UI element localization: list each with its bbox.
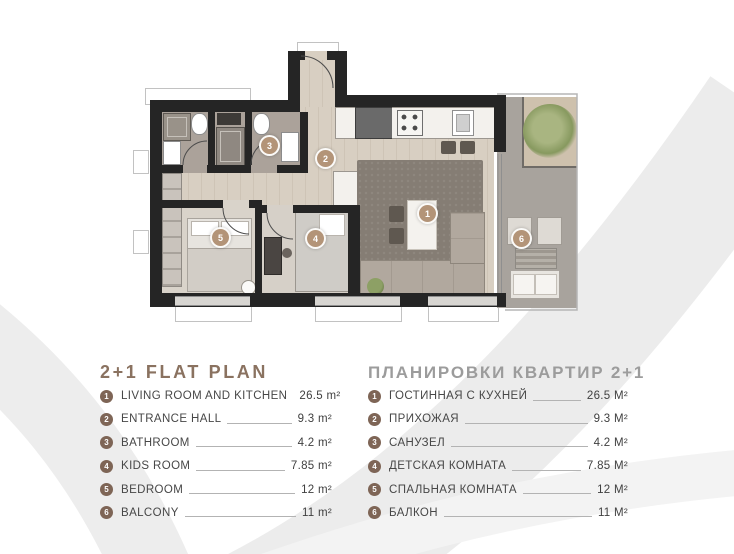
- leader-line: [185, 516, 296, 517]
- balcony-table: [515, 248, 557, 269]
- window-sill-living: [428, 306, 499, 322]
- list-item: 4 KIDS ROOM 7.85 m²: [100, 459, 332, 473]
- balcony-chair: [537, 217, 562, 245]
- leader-line: [227, 423, 291, 424]
- item-number-badge: 5: [100, 483, 113, 496]
- leader-line: [465, 423, 588, 424]
- dining-chair: [460, 141, 475, 154]
- room-label: ДЕТСКАЯ КОМНАТА: [389, 460, 506, 472]
- loveseat-icon: [510, 270, 560, 299]
- leader-line: [512, 470, 581, 471]
- room-area: 26.5 М²: [587, 390, 628, 402]
- wall: [208, 112, 215, 165]
- room-label: БАЛКОН: [389, 507, 438, 519]
- flat-plan-title-en: 2+1 FLAT PLAN: [100, 362, 268, 383]
- item-number-badge: 2: [368, 413, 381, 426]
- page: 1 2 3 4 5 6 2+1 FLAT PLAN 1 LIVING ROOM …: [0, 0, 734, 554]
- wardrobe-icon: [162, 173, 182, 287]
- desk-icon: [264, 237, 282, 275]
- item-number-badge: 3: [100, 436, 113, 449]
- room-label: KIDS ROOM: [121, 460, 190, 472]
- dining-chair: [441, 141, 456, 154]
- item-number-badge: 6: [100, 506, 113, 519]
- room-area: 7.85 М²: [587, 460, 628, 472]
- flat-plan-list-ru: 1 ГОСТИННАЯ С КУХНЕЙ 26.5 М² 2 ПРИХОЖАЯ …: [368, 389, 628, 529]
- item-number-badge: 4: [368, 460, 381, 473]
- plan-marker-1: 1: [417, 203, 438, 224]
- room-label: САНУЗЕЛ: [389, 437, 445, 449]
- leader-line: [196, 470, 284, 471]
- plan-marker-5: 5: [210, 227, 231, 248]
- leader-line: [533, 400, 581, 401]
- window-icon: [175, 296, 250, 306]
- room-area: 11 m²: [302, 507, 332, 519]
- door-opening: [267, 205, 293, 213]
- left-sill-2: [133, 230, 149, 254]
- list-item: 6 БАЛКОН 11 М²: [368, 506, 628, 520]
- shower-cabin-icon: [216, 127, 245, 166]
- wall: [348, 205, 360, 293]
- door-opening: [251, 165, 277, 173]
- wall: [300, 112, 308, 173]
- toilet-icon: [253, 113, 270, 135]
- list-item: 2 ENTRANCE HALL 9.3 m²: [100, 412, 332, 426]
- wall: [494, 100, 506, 152]
- room-label: LIVING ROOM AND KITCHEN: [121, 390, 287, 402]
- room-area: 7.85 m²: [291, 460, 332, 472]
- wall: [255, 200, 262, 293]
- room-label: ENTRANCE HALL: [121, 413, 221, 425]
- kitchen-counter-dark: [355, 107, 394, 139]
- room-area: 12 М²: [597, 484, 628, 496]
- window-sill-bedroom: [175, 306, 252, 322]
- list-item: 2 ПРИХОЖАЯ 9.3 М²: [368, 412, 628, 426]
- room-label: BATHROOM: [121, 437, 190, 449]
- room-area: 4.2 m²: [298, 437, 332, 449]
- bathroom-sink-icon: [163, 141, 181, 165]
- list-item: 1 ГОСТИННАЯ С КУХНЕЙ 26.5 М²: [368, 389, 628, 403]
- door-opening: [305, 51, 327, 60]
- wall: [245, 112, 252, 165]
- item-number-badge: 6: [368, 506, 381, 519]
- plan-marker-3: 3: [259, 135, 280, 156]
- item-number-badge: 3: [368, 436, 381, 449]
- room-area: 9.3 m²: [298, 413, 332, 425]
- list-item: 5 BEDROOM 12 m²: [100, 483, 332, 497]
- single-bed-icon: [295, 210, 349, 292]
- room-label: ГОСТИННАЯ С КУХНЕЙ: [389, 390, 527, 402]
- desk-chair: [282, 248, 292, 258]
- flat-plan-list-en: 1 LIVING ROOM AND KITCHEN 26.5 m² 2 ENTR…: [100, 389, 332, 529]
- room-label: BEDROOM: [121, 484, 183, 496]
- room-area: 4.2 М²: [594, 437, 628, 449]
- item-number-badge: 4: [100, 460, 113, 473]
- room-label: BALCONY: [121, 507, 179, 519]
- leader-line: [196, 446, 292, 447]
- item-number-badge: 1: [368, 390, 381, 403]
- room-label: СПАЛЬНАЯ КОМНАТА: [389, 484, 517, 496]
- leader-line: [451, 446, 588, 447]
- plan-marker-2: 2: [315, 148, 336, 169]
- door-opening: [223, 200, 249, 208]
- stove-icon: [397, 110, 423, 136]
- leader-line: [189, 493, 295, 494]
- flat-plan-title-ru: ПЛАНИРОВКИ КВАРТИР 2+1: [368, 363, 645, 383]
- plan-marker-6: 6: [511, 228, 532, 249]
- item-number-badge: 1: [100, 390, 113, 403]
- list-item: 3 САНУЗЕЛ 4.2 М²: [368, 436, 628, 450]
- window-icon: [315, 296, 400, 306]
- list-item: 3 BATHROOM 4.2 m²: [100, 436, 332, 450]
- room-area: 26.5 m²: [299, 390, 340, 402]
- list-item: 5 СПАЛЬНАЯ КОМНАТА 12 М²: [368, 483, 628, 497]
- dining-chair: [389, 206, 404, 222]
- list-item: 4 ДЕТСКАЯ КОМНАТА 7.85 М²: [368, 459, 628, 473]
- kitchen-cabinet: [335, 107, 357, 139]
- tree-icon: [523, 104, 577, 158]
- wall: [150, 100, 162, 307]
- list-item: 1 LIVING ROOM AND KITCHEN 26.5 m²: [100, 389, 332, 403]
- door-opening: [183, 165, 207, 173]
- wall: [150, 100, 300, 112]
- window-icon: [428, 296, 497, 306]
- leader-line: [523, 493, 591, 494]
- room-area: 9.3 М²: [594, 413, 628, 425]
- room-area: 11 М²: [598, 507, 628, 519]
- list-item: 6 BALCONY 11 m²: [100, 506, 332, 520]
- kitchen-sink-icon: [452, 110, 474, 136]
- sofa-chaise: [450, 212, 485, 264]
- toilet-icon: [191, 113, 208, 135]
- item-number-badge: 2: [100, 413, 113, 426]
- dining-chair: [389, 228, 404, 244]
- item-number-badge: 5: [368, 483, 381, 496]
- washer-icon: [217, 113, 241, 125]
- floor-plan: 1 2 3 4 5 6: [145, 42, 585, 332]
- left-sill-1: [133, 150, 149, 174]
- leader-line: [444, 516, 592, 517]
- shower-icon: [163, 113, 191, 141]
- room-area: 12 m²: [301, 484, 332, 496]
- room-label: ПРИХОЖАЯ: [389, 413, 459, 425]
- window-sill-kidsroom: [315, 306, 402, 322]
- bathroom-sink-icon: [281, 132, 299, 162]
- wall: [335, 95, 506, 107]
- plan-marker-4: 4: [305, 228, 326, 249]
- wall: [335, 51, 347, 100]
